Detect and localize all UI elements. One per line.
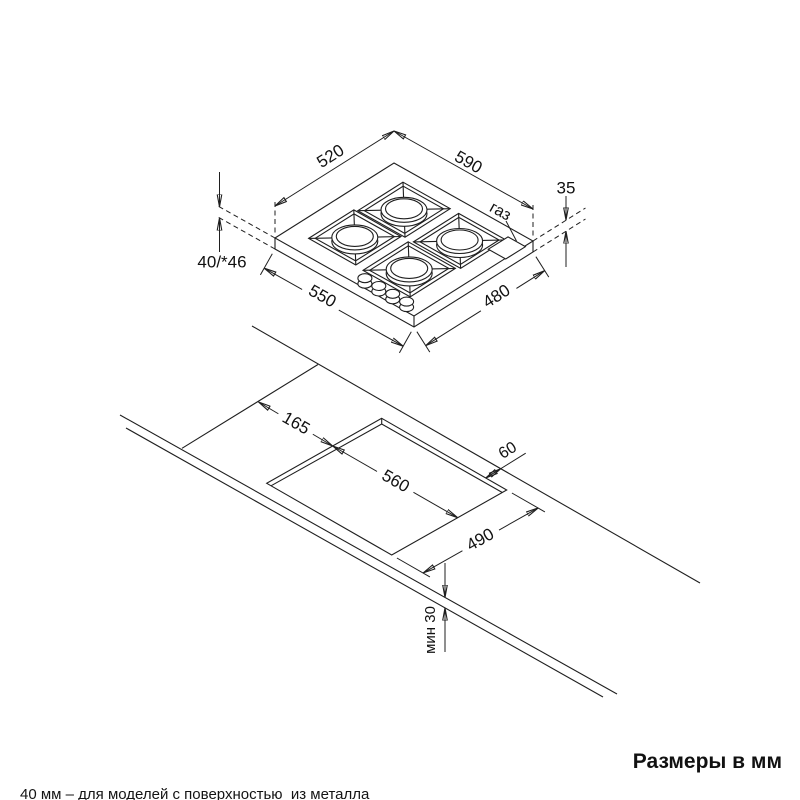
hob-top-view: 520 590 550 480 35 40/*46 газ xyxy=(197,131,585,353)
dimension-label-40-46: 40/*46 xyxy=(197,252,246,271)
dimension-label-550: 550 xyxy=(300,278,346,315)
dimension-label-560: 560 xyxy=(373,462,419,499)
countertop-cutout-view: 165 560 60 490 xyxy=(120,326,700,697)
countertop-outline xyxy=(120,326,700,697)
dimension-label-520: 520 xyxy=(313,141,347,172)
dimension-label-480: 480 xyxy=(474,277,520,315)
dimension-label-min30: мин 30 xyxy=(422,606,439,654)
units-note: Размеры в мм xyxy=(633,750,782,774)
footnote-metal: 40 мм – для моделей с поверхностью из ме… xyxy=(20,785,369,800)
installation-drawing-page: 520 590 550 480 35 40/*46 газ xyxy=(0,0,800,800)
cutout-dimensions: 165 560 60 490 xyxy=(259,402,545,654)
dimension-label-590: 590 xyxy=(451,147,485,177)
dimension-label-490: 490 xyxy=(457,521,503,558)
svg-text:520: 520 xyxy=(313,141,347,172)
technical-drawing: 520 590 550 480 35 40/*46 газ xyxy=(0,0,800,800)
svg-text:мин 30: мин 30 xyxy=(422,606,439,654)
svg-text:590: 590 xyxy=(451,147,485,177)
dimension-label-165: 165 xyxy=(274,405,318,441)
footnotes: 40 мм – для моделей с поверхностью из ме… xyxy=(20,745,369,800)
dimension-label-35: 35 xyxy=(557,178,576,197)
